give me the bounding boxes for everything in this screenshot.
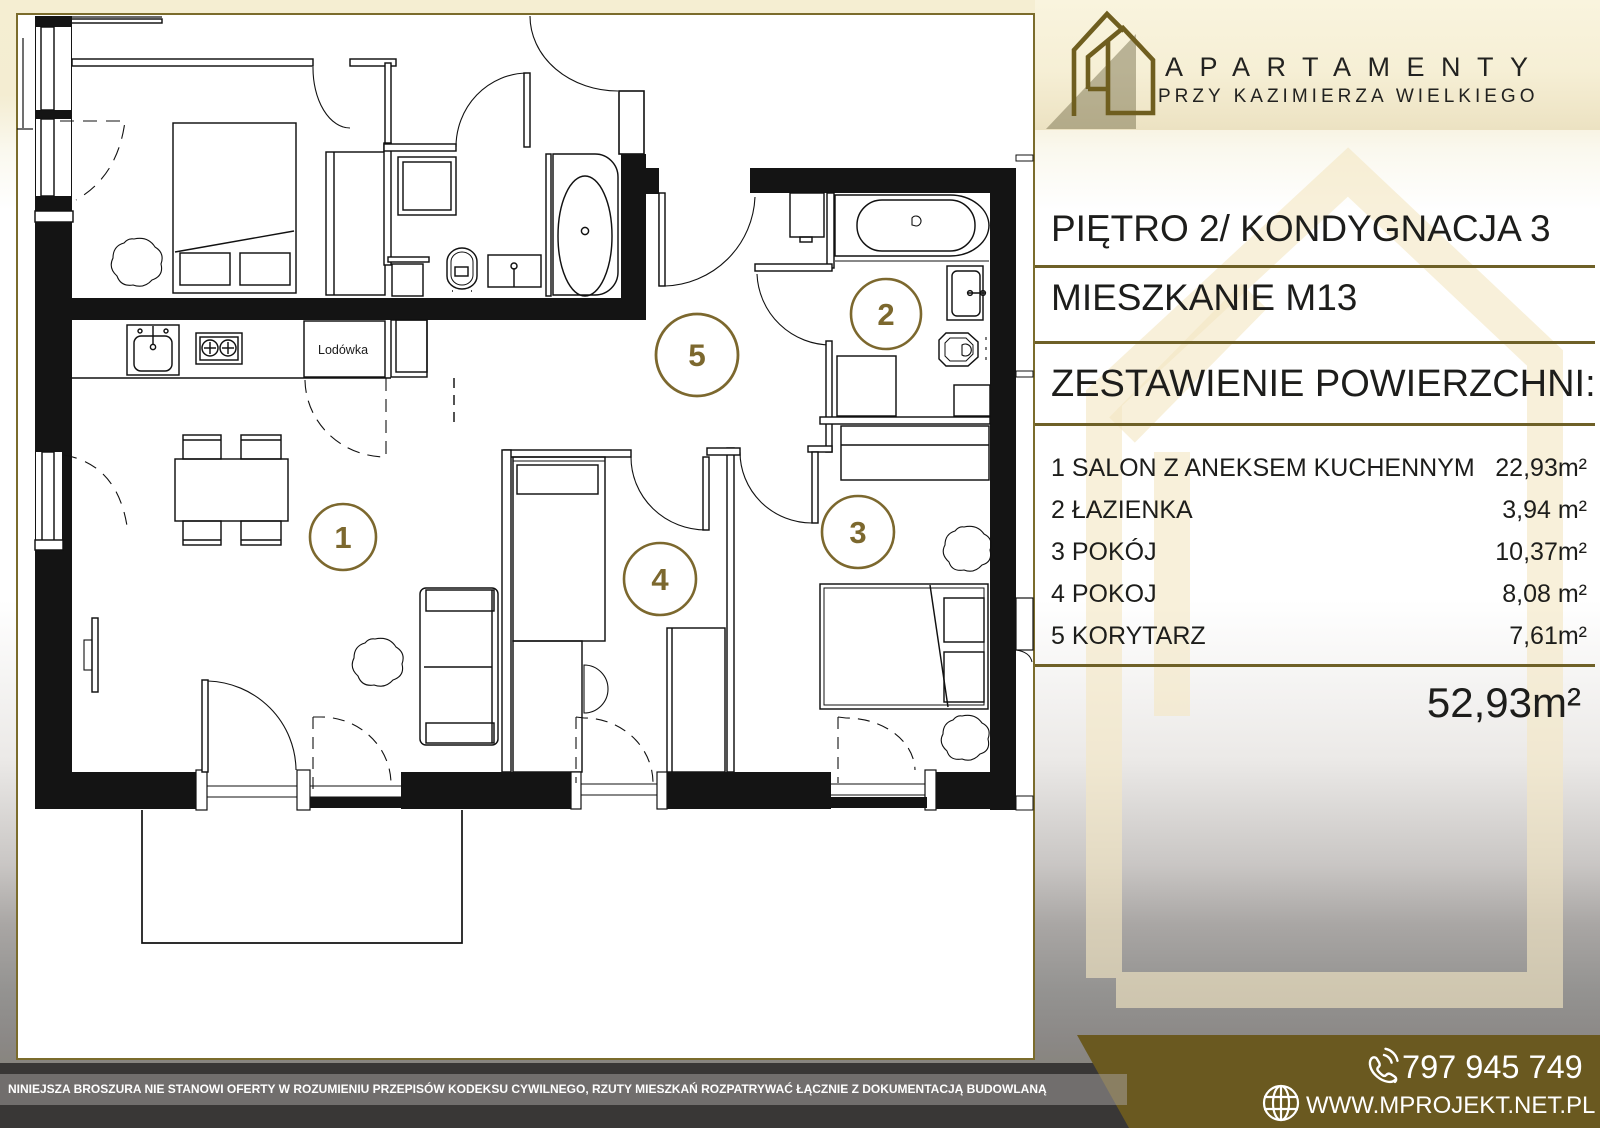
svg-text:4: 4 (651, 562, 669, 597)
svg-text:3: 3 (849, 515, 866, 550)
svg-text:2: 2 (877, 297, 894, 332)
svg-text:Lodówka: Lodówka (318, 343, 368, 357)
svg-text:5: 5 (688, 337, 706, 373)
svg-text:1: 1 (334, 520, 351, 555)
